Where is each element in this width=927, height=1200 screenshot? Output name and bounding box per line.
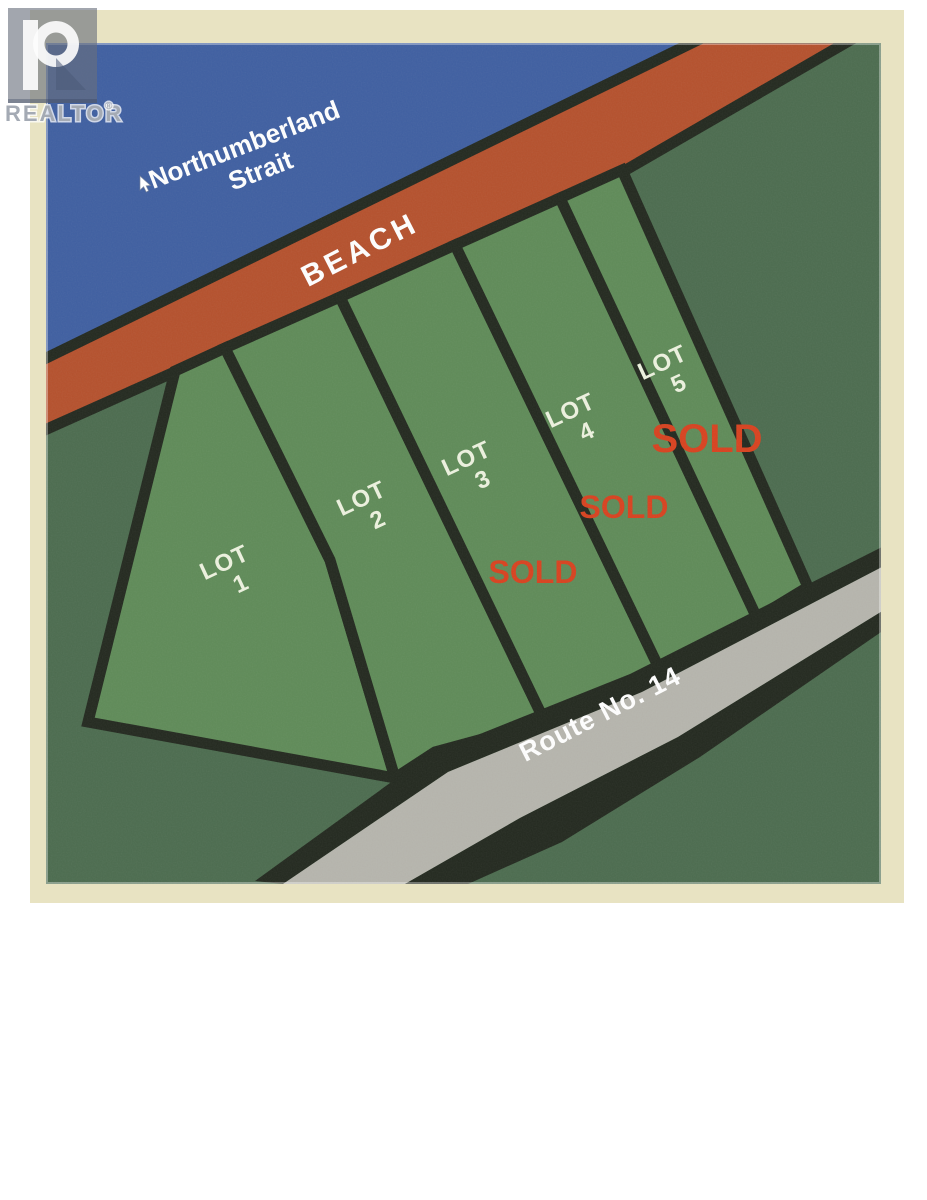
listing-image-page: Northumberland Strait BEACH LOT 1 LOT 2 … bbox=[0, 0, 927, 1200]
realtor-logo-icon bbox=[8, 8, 97, 103]
registered-trademark-symbol: ® bbox=[105, 101, 114, 112]
lot-map-image: Northumberland Strait BEACH LOT 1 LOT 2 … bbox=[0, 0, 927, 1200]
texture-overlay bbox=[46, 43, 881, 884]
